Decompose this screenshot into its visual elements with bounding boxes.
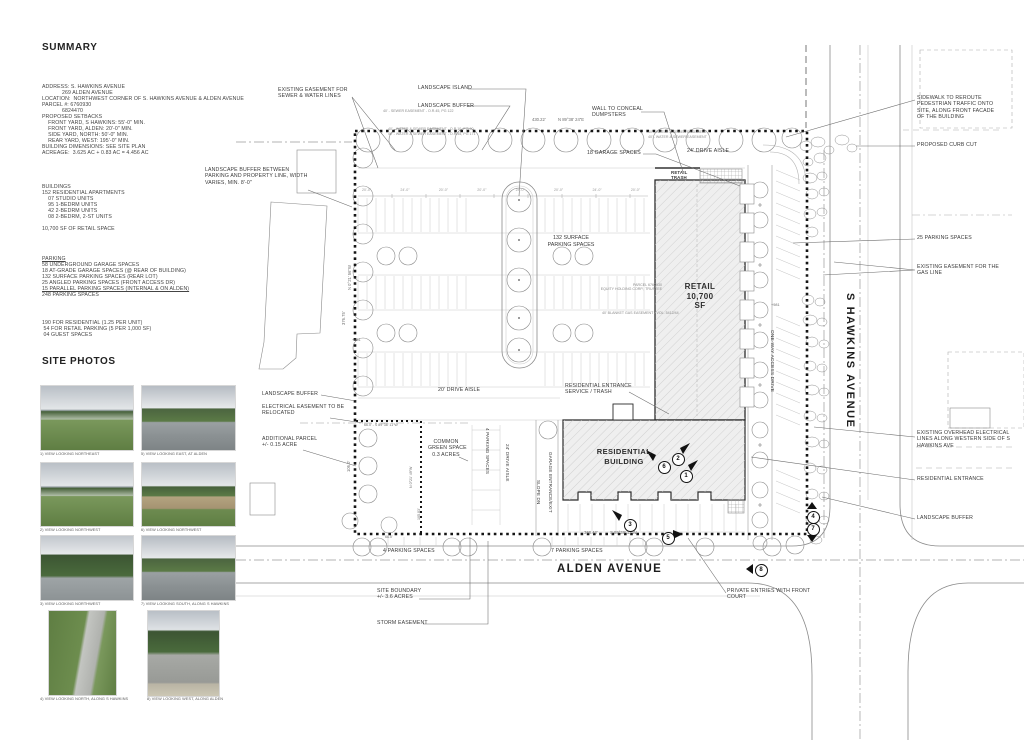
callout-residential-entrance: RESIDENTIAL ENTRANCE	[917, 476, 984, 482]
view-marker-2: 2	[672, 453, 685, 466]
view-marker-7: 7	[807, 523, 820, 536]
spot-elevation-2: +981	[352, 338, 361, 342]
leader-lines	[303, 89, 915, 624]
callout-electrical-easement: ELECTRICAL EASEMENT TO BERELOCATED	[262, 404, 344, 417]
callout-site-boundary: SITE BOUNDARY+/- 3.6 ACRES	[377, 588, 421, 601]
label-24-drive-aisle-vertical: 24' DRIVE AISLE	[504, 444, 510, 482]
dim-parcel-top: 66.0' - S 89°38' 11"W	[364, 423, 398, 427]
label-132-surface-parking: 132 SURFACEPARKING SPACES	[540, 235, 602, 248]
label-retail-building: RETAIL10,700SF	[672, 282, 728, 311]
spot-elevation-1: +981	[771, 303, 780, 307]
callout-common-green-space: COMMONGREEN SPACE0.3 ACRES	[428, 439, 464, 458]
label-retail-trash: RETAILTRASH	[671, 170, 687, 180]
dim-left-bearing: N 0°21' 56"W	[347, 265, 352, 290]
dim-top-bearing: N 89°38' 24"E	[558, 117, 584, 122]
label-slope-dn: SLOPE DN	[535, 480, 541, 504]
callout-25-parking-spaces: 25 PARKING SPACES	[917, 235, 972, 241]
callout-sewer-water-easement: EXISTING EASEMENT FORSEWER & WATER LINES	[278, 87, 348, 100]
dim-parcel-right-length: 105.83'	[417, 508, 421, 520]
callout-landscape-island: LANDSCAPE ISLAND	[418, 85, 472, 91]
callout-landscape-buffer-left: LANDSCAPE BUFFER	[262, 391, 318, 397]
view-marker-1: 1	[680, 470, 693, 483]
dim-parcel-right-bearing: N 0°21' 49"W	[409, 467, 413, 488]
callout-landscape-buffer-between: LANDSCAPE BUFFER BETWEENPARKING AND PROP…	[205, 167, 308, 186]
callout-gas-line-easement: EXISTING EASEMENT FOR THEGAS LINE	[917, 264, 999, 277]
label-one-way-access-drive: ONE-WAY ACCESS DRIVE	[768, 330, 774, 392]
dim-top-length: 430.22'	[532, 117, 546, 122]
callout-landscape-buffer-right: LANDSCAPE BUFFER	[917, 515, 973, 521]
callout-overhead-electrical: EXISTING OVERHEAD ELECTRICALLINES ALONG …	[917, 430, 1010, 449]
site-plan-sheet: SUMMARY ADDRESS: S. HAWKINS AVENUE 269 A…	[0, 0, 1024, 755]
note-parcel-owner: PARCEL 6760930EQUITY HOLDING CORP., TRUS…	[600, 283, 662, 292]
label-20-drive-aisle: 20' DRIVE AISLE	[438, 387, 480, 393]
note-water-sewer-easement-1: 40' - WATER & SEWER EASEMENT - O.R.10, P…	[388, 127, 474, 131]
street-alden-avenue: ALDEN AVENUE	[557, 563, 662, 575]
dim-bottom-length: 368.43'	[584, 530, 598, 535]
label-residential-building: RESIDENTIALBUILDING	[586, 447, 662, 466]
view-marker-5: 5	[662, 532, 675, 545]
callout-storm-easement: STORM EASEMENT	[377, 620, 428, 626]
callout-private-entries: PRIVATE ENTRIES WITH FRONTCOURT	[727, 588, 810, 601]
view-marker-6: 6	[658, 461, 671, 474]
callout-wall-dumpsters: WALL TO CONCEALDUMPSTERS	[592, 106, 643, 119]
label-24-drive-aisle: 24' DRIVE AISLE	[687, 148, 729, 154]
note-sewer-easement: 40' - SEWER EASEMENT - O.R.45, PG 122	[383, 109, 454, 113]
view-marker-3: 3	[624, 519, 637, 532]
note-gas-blanket-easement: 40' BLANKET GAS EASEMENT - VOL. 5412/44	[602, 311, 679, 315]
callout-proposed-curb-cut: PROPOSED CURB CUT	[917, 142, 977, 148]
note-water-sewer-easement-3: 40' - WATER & SEWER EASEMENT	[648, 130, 707, 134]
view-marker-4: 4	[807, 511, 820, 524]
label-garage-entrance-exit: GARAGE ENTRANCE/EXIT	[547, 452, 553, 513]
label-7-parking-spaces: 7 PARKING SPACES	[551, 548, 603, 554]
street-s-hawkins-avenue: S HAWKINS AVENUE	[844, 293, 856, 429]
label-4-parking-spaces-vertical: 4 PARKING SPACES	[484, 428, 490, 474]
note-water-sewer-easement-2: 40' - WATER & SEWER EASEMENT - O.R.45, P…	[388, 132, 476, 136]
label-4-parking-spaces: 4 PARKING SPACES	[383, 548, 435, 554]
callout-18-garage-spaces: 18 GARAGE SPACES	[587, 150, 641, 156]
sidewalk-hatch	[776, 170, 800, 513]
dim-left-length-2: 106.0'	[346, 461, 351, 472]
site-plan-linework	[0, 0, 1024, 755]
note-water-sewer-easement-4: 40' - WATER & SEWER EASEMENT	[648, 135, 707, 139]
view-marker-8: 8	[755, 564, 768, 577]
callout-additional-parcel: ADDITIONAL PARCEL+/- 0.15 ACRE	[262, 436, 317, 449]
stall-dimension-row: 20'-0"24'-0"20'-0"20'-0"24'-0"20'-0"24'-…	[362, 188, 640, 192]
dim-left-length: 376.75'	[341, 311, 346, 325]
callout-residential-entrance-service: RESIDENTIAL ENTRANCESERVICE / TRASH	[565, 383, 632, 396]
callout-sidewalk-reroute: SIDEWALK TO REROUTEPEDESTRIAN TRAFFIC ON…	[917, 95, 994, 121]
dim-parcel-bottom: 66.0'	[385, 535, 393, 539]
